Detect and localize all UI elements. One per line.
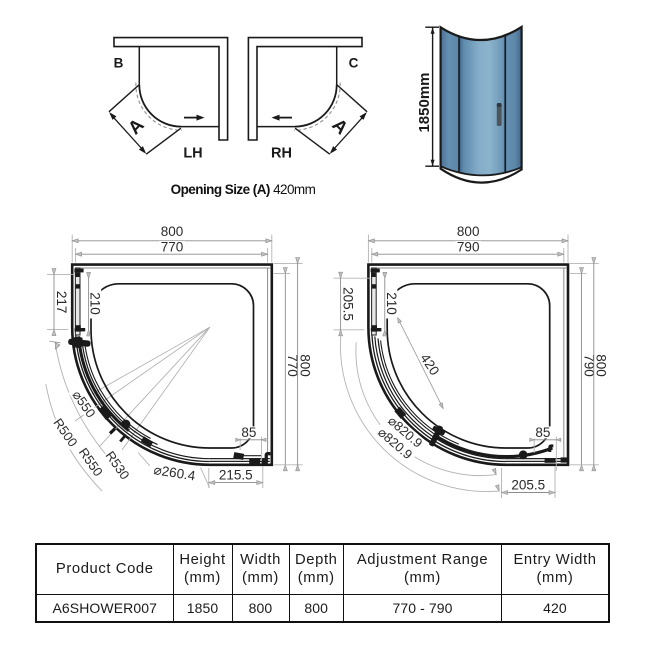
svg-text:⌀260.4: ⌀260.4 (153, 462, 197, 483)
svg-text:800: 800 (298, 354, 313, 377)
svg-text:B: B (114, 55, 124, 70)
svg-text:1850mm: 1850mm (416, 72, 433, 132)
svg-text:770: 770 (161, 240, 184, 255)
svg-text:RH: RH (271, 146, 292, 162)
svg-text:800: 800 (457, 224, 480, 239)
svg-text:205.5: 205.5 (511, 478, 545, 493)
svg-text:800: 800 (594, 354, 609, 377)
svg-text:85: 85 (241, 425, 256, 440)
svg-text:217: 217 (54, 291, 69, 314)
svg-text:790: 790 (457, 240, 480, 255)
svg-text:210: 210 (88, 292, 103, 315)
svg-text:C: C (349, 55, 359, 70)
svg-text:800: 800 (161, 224, 184, 239)
svg-text:A: A (123, 114, 147, 138)
svg-text:85: 85 (535, 425, 550, 440)
svg-text:205.5: 205.5 (341, 287, 356, 321)
svg-text:LH: LH (183, 146, 202, 162)
svg-text:215.5: 215.5 (219, 468, 253, 483)
svg-text:Opening Size (A) 420mm: Opening Size (A) 420mm (171, 182, 316, 197)
svg-text:210: 210 (384, 292, 399, 315)
svg-text:A: A (328, 114, 352, 138)
